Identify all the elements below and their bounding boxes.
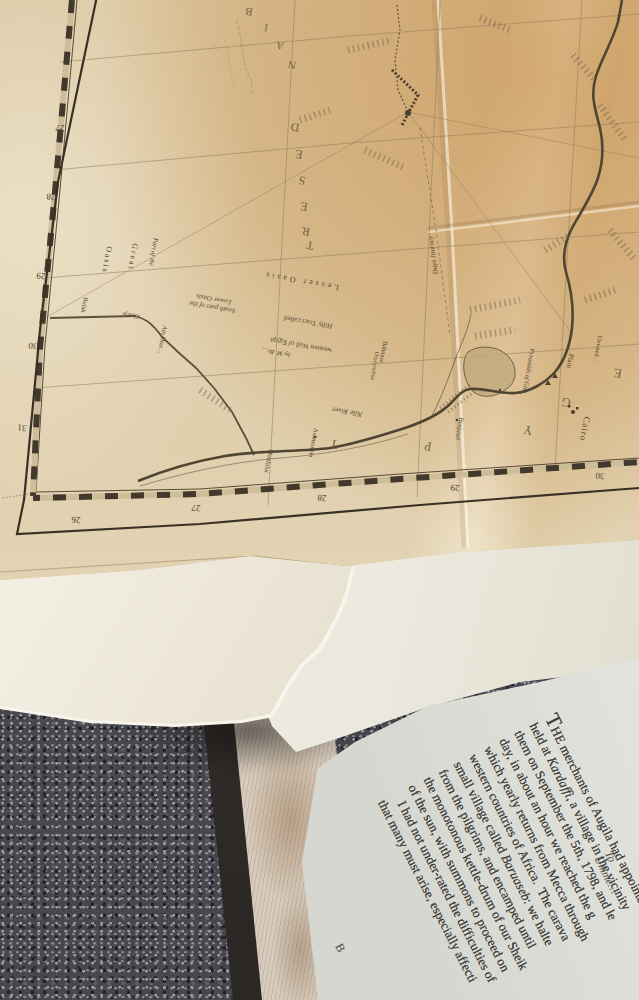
photo-of-book-with-foldout-map: { "map": { "region_letters": { "libyan":…: [0, 0, 639, 1000]
latlong-tick: 29: [450, 483, 460, 494]
engraver-credit-mark: [2, 494, 30, 498]
latlong-tick: 28: [46, 192, 56, 203]
ink-showthrough: [225, 20, 252, 96]
latlong-tick: 28: [317, 493, 327, 504]
nile-bank-line: [140, 434, 408, 486]
graticule-grid: [34, 0, 639, 505]
latlong-tick: 30: [28, 341, 38, 352]
latlong-tick: 26: [71, 515, 81, 526]
latlong-tick: 27: [55, 123, 65, 134]
route-to-hub: [395, 5, 408, 112]
latlong-tick: 29: [36, 271, 46, 282]
latlong-tick: 30: [595, 471, 605, 482]
bearing-lines: [45, 112, 639, 335]
latlong-tick: 31: [17, 423, 27, 434]
caravan-route: [50, 316, 254, 455]
nile-river-path: [138, 0, 622, 481]
latlong-tick: 27: [191, 503, 201, 514]
